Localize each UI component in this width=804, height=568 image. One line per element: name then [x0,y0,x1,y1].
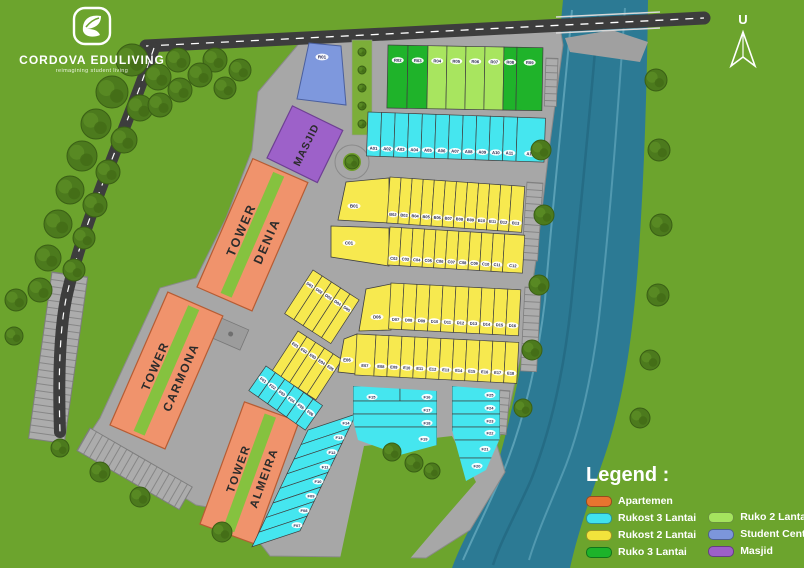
tree-icon [529,275,549,295]
plot-label-E06: E06 [343,358,351,363]
tree-icon [5,327,23,345]
ruko-row: R02R03R04R05R06R07R08R09 [387,45,543,111]
plot-R06 [465,46,485,109]
legend-item: Ruko 2 Lantai [708,511,804,523]
tree-icon [111,127,137,153]
plot-E15 [465,340,480,382]
plot-R05 [446,46,466,109]
legend-swatch [586,513,612,524]
tree-icon [522,340,542,360]
plot-label-B01: B01 [350,204,359,209]
legend-item-label: Student Center [740,528,804,540]
legend-item: Ruko 3 Lantai [586,546,696,558]
plot-label-F07: F07 [294,523,302,528]
rukost2-row-d: D07D08D09D10D11D12D13D14D15D16 [389,283,521,336]
legend-item: Rukost 3 Lantai [586,512,696,524]
tree-icon [405,454,423,472]
plot-label-A05: A05 [424,148,433,153]
plot-E18 [504,342,519,384]
legend-item-label: Apartemen [618,495,673,507]
plot-label-B09: B09 [467,217,475,223]
plot-label-F25: F25 [487,393,495,398]
plot-label-A07: A07 [451,149,460,154]
tree-icon [73,227,95,249]
plot-label-B13: B13 [512,220,520,226]
plot-label-F23: F23 [487,419,495,424]
rukost2-row-b: B02B03B04B05B06B07B08B09B10B11B12B13 [387,177,525,232]
plot-R09 [516,47,543,110]
plot-label-D07: D07 [392,317,400,322]
plot-D16 [505,289,520,336]
plot-label-C06: C06 [436,258,444,263]
plot-label-E16: E16 [481,369,489,374]
plot-label-C10: C10 [482,261,490,266]
plot-R03 [407,45,428,108]
tree-icon [51,439,69,457]
plot-label-A01: A01 [370,146,379,151]
plot-B01 [338,178,389,223]
plot-label-A09: A09 [478,149,487,154]
plot-label-B12: B12 [500,219,508,225]
plot-label-D06: D06 [373,315,381,320]
plot-R02 [387,45,408,108]
plot-R04 [427,46,447,109]
plot-label-F22: F22 [487,431,495,436]
plot-E17 [491,341,506,383]
tree-icon [534,205,554,225]
brand-logo: CORDOVA EDULIVING reimagining student li… [12,6,172,74]
tree-icon [358,66,366,74]
plot-label-C04: C04 [413,257,421,262]
plot-E07 [355,334,376,376]
rukost2-row-c: C02C03C04C05C06C07C08C09C10C11C12 [388,227,525,273]
plot-E11 [413,337,428,379]
tree-icon [148,93,172,117]
tree-icon [81,109,111,139]
legend-swatch [586,530,612,541]
plot-label-B03: B03 [400,212,408,218]
plot-label-F11: F11 [322,464,329,469]
plot-label-E11: E11 [416,366,424,371]
legend-swatch [708,512,734,523]
legend-item: Rukost 2 Lantai [586,529,696,541]
tree-icon [35,245,61,271]
plot-E14 [452,339,467,381]
plot-E16 [478,340,493,382]
plot-label-C05: C05 [424,258,432,263]
tree-icon [424,463,440,479]
plot-label-F08: F08 [301,508,309,513]
plot-label-F16: F16 [424,395,432,400]
legend-item-label: Ruko 3 Lantai [618,546,687,558]
plot-label-B05: B05 [422,214,430,220]
plot-label-E07: E07 [361,363,369,368]
tree-icon [358,84,366,92]
legend-item: Student Center [708,528,804,540]
tree-icon [514,399,532,417]
plot-label-D14: D14 [483,321,491,326]
plot-label-R03: R03 [414,58,422,63]
plot-label-E14: E14 [455,368,463,373]
rukost2-row-e: E07E08E09E10E11E12E13E14E15E16E17E18 [355,334,519,383]
tree-icon [96,76,128,108]
legend-column-1: ApartemenRukost 3 LantaiRukost 2 LantaiR… [586,495,696,558]
plot-E09 [387,336,402,378]
plot-label-C08: C08 [459,260,467,265]
plot-label-B07: B07 [444,216,452,222]
tree-icon [229,59,251,81]
plot-label-F18: F18 [424,421,432,426]
tree-icon [130,487,150,507]
tree-icon [67,141,97,171]
plot-R08 [503,47,517,110]
plot-E10 [400,336,415,378]
plot-label-B11: B11 [489,219,497,225]
plot-label-F17: F17 [424,408,432,413]
plot-label-D11: D11 [444,319,452,324]
legend-item-label: Masjid [740,545,773,557]
plot-label-A08: A08 [465,149,474,154]
tree-icon [645,69,667,91]
plot-label-C07: C07 [447,259,455,264]
plot-label-D13: D13 [470,321,478,326]
plot-R07 [484,47,504,110]
plot-label-B04: B04 [411,213,419,219]
plot-label-F20: F20 [474,464,482,469]
plot-label-R08: R08 [506,60,514,65]
plot-label-E09: E09 [390,364,398,369]
plot-label-E08: E08 [377,364,385,369]
legend-swatch [586,496,612,507]
tree-icon [188,63,212,87]
tree-icon [96,160,120,184]
leaf-logo-icon [72,6,112,46]
plot-label-F12: F12 [329,450,337,455]
plot-label-D10: D10 [431,319,439,324]
tree-icon [56,176,84,204]
plot-label-C11: C11 [493,262,501,267]
plot-label-A11: A11 [506,150,514,155]
plot-label-R02: R02 [394,58,402,63]
plot-label-F10: F10 [315,479,323,484]
tree-icon [168,78,192,102]
plot-label-D16: D16 [509,323,517,328]
legend-column-2: Ruko 2 LantaiStudent CenterMasjid [708,511,804,558]
tree-icon [214,77,236,99]
tree-icon [650,214,672,236]
legend-item-label: Ruko 2 Lantai [740,511,804,523]
plot-label-F15: F15 [369,395,377,400]
plot-label-B06: B06 [433,215,441,221]
plot-label-E18: E18 [507,371,515,376]
plot-label-C01: C01 [345,241,354,246]
plot-label-A06: A06 [438,148,447,153]
tree-icon [63,259,85,281]
legend-swatch [708,529,734,540]
plot-label-C12: C12 [509,263,517,268]
rukost3-row-a: A01A02A03A04A05A06A07A08A09A10A11A12 [366,112,545,162]
plot-label-C09: C09 [470,261,478,266]
plot-label-F21: F21 [482,447,490,452]
compass-north-label: U [738,12,747,27]
plot-label-A02: A02 [383,146,392,151]
legend-item: Apartemen [586,495,696,507]
legend-item-label: Rukost 2 Lantai [618,529,696,541]
tree-icon [83,193,107,217]
legend-item: Masjid [708,545,804,557]
legend-title: Legend : [586,464,802,487]
tree-icon [358,102,366,110]
plot-label-F19: F19 [421,437,429,442]
plot-label-E15: E15 [468,368,476,373]
plot-label-A04: A04 [410,147,419,152]
plot-label-E17: E17 [494,370,502,375]
legend-swatch [708,546,734,557]
legend-item-label: Rukost 3 Lantai [618,512,696,524]
plot-label-D08: D08 [405,317,413,322]
tree-icon [358,48,366,56]
brand-tagline: reimagining student living [12,68,172,74]
tree-icon [640,350,660,370]
plot-label-C03: C03 [402,256,410,261]
plot-E08 [374,335,389,377]
plot-label-D15: D15 [496,322,504,327]
plot-label-D09: D09 [418,318,426,323]
plot-label-R05: R05 [452,59,460,64]
plot-label-R09: R09 [526,60,534,65]
plot-B01-group: B01 [338,178,389,223]
plot-label-E13: E13 [442,367,450,372]
plot-label-R04: R04 [433,58,441,63]
plot-label-F14: F14 [343,421,351,426]
tree-icon [28,278,52,302]
plot-label-B10: B10 [478,218,486,224]
plot-label-F13: F13 [336,435,344,440]
tree-icon [383,443,401,461]
parking-strip-1 [544,58,558,106]
tree-icon [531,140,551,160]
plot-label-B02: B02 [389,212,397,218]
plot-label-R06: R06 [471,59,479,64]
brand-name: CORDOVA EDULIVING [12,53,172,67]
site-plan-image: { "logo": { "name": "CORDOVA EDULIVING",… [0,0,804,568]
plot-label-E10: E10 [403,365,411,370]
plot-E13 [439,338,454,380]
plot-label-student-center: R01 [318,55,327,60]
tree-icon [212,522,232,542]
tree-icon [345,155,359,169]
plot-label-C02: C02 [390,256,398,261]
plot-label-F09: F09 [308,494,316,499]
tree-icon [358,120,366,128]
tree-icon [5,289,27,311]
plot-label-E12: E12 [429,366,437,371]
tree-icon [630,408,650,428]
plot-E12 [426,338,441,380]
plot-label-B08: B08 [456,216,464,222]
plot-label-R07: R07 [490,59,498,64]
tree-icon [648,139,670,161]
tree-icon [44,210,72,238]
plot-label-A03: A03 [397,147,406,152]
legend: Legend : ApartemenRukost 3 LantaiRukost … [586,464,802,558]
plot-label-F24: F24 [487,406,495,411]
tree-icon [647,284,669,306]
plot-label-A10: A10 [492,150,501,155]
tree-icon [90,462,110,482]
plot-label-D12: D12 [457,320,465,325]
legend-swatch [586,547,612,558]
